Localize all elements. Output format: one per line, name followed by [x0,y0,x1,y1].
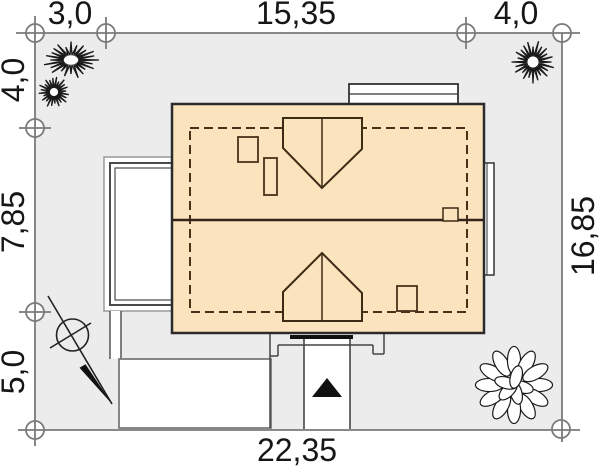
chimney-3 [397,286,417,311]
bay-window [484,163,494,275]
dim-label-right-total: 16,85 [565,196,600,276]
site-plan-canvas: 3,0 15,35 4,0 4,0 7,85 5,0 16,85 22,35 [0,0,600,466]
dim-label-top-left: 3,0 [48,0,92,31]
roof-vent [443,208,458,221]
dim-label-left-top: 4,0 [0,58,31,102]
driveway [119,359,271,428]
roof-top-box [349,84,458,106]
chimney-2 [264,158,277,195]
site-plan-drawing: 3,0 15,35 4,0 4,0 7,85 5,0 16,85 22,35 [0,0,600,466]
dim-label-bottom-total: 22,35 [257,432,337,466]
house-roof [172,104,484,333]
dim-label-left-bottom: 5,0 [0,350,31,394]
terrace-path [110,311,121,359]
terrace [104,157,174,311]
dim-label-top-middle: 15,35 [256,0,336,31]
dim-label-top-right: 4,0 [494,0,538,31]
entrance-threshold [290,335,353,339]
chimney-1 [238,137,258,162]
dim-label-left-middle: 7,85 [0,191,31,253]
